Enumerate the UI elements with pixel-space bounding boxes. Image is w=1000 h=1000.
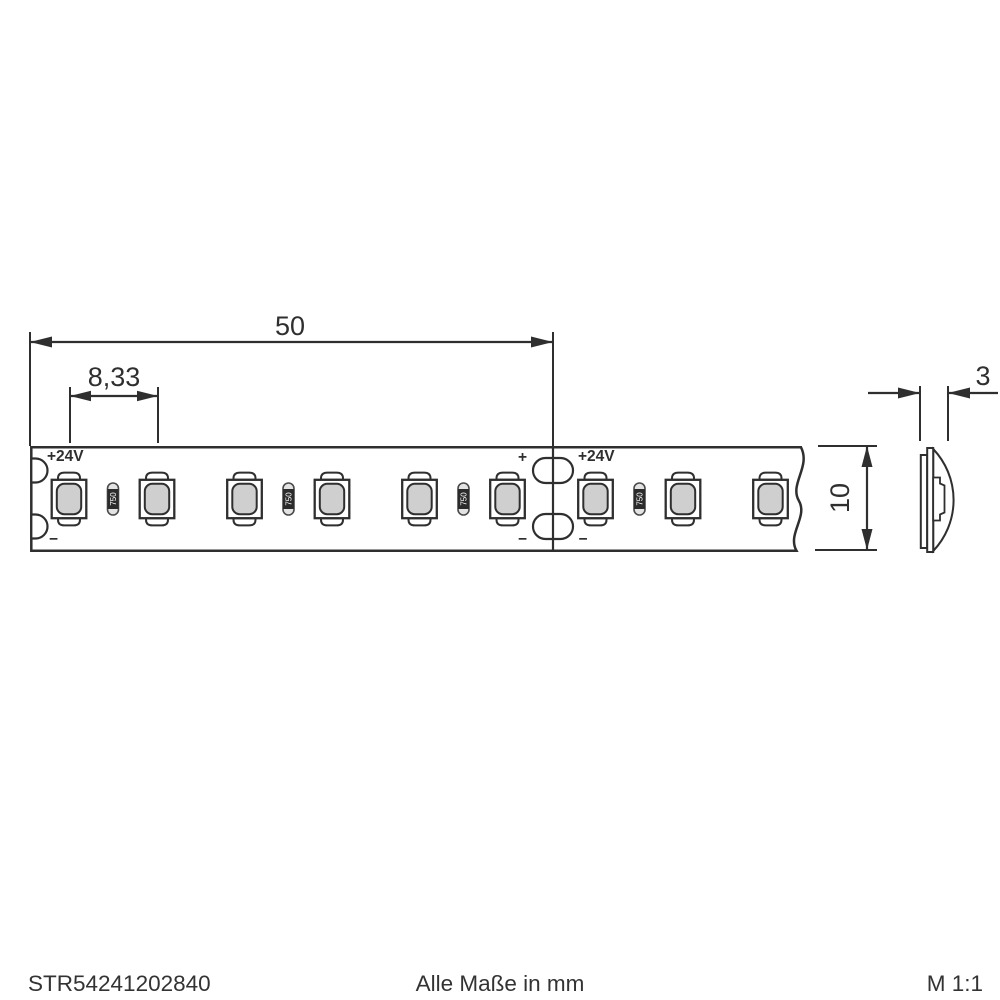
minus-label-right: −	[579, 531, 588, 548]
strip-thickness-value: 3	[975, 361, 990, 391]
dimension-strip-thickness: 3	[868, 361, 998, 441]
arrowhead-right-icon	[898, 388, 920, 399]
led-package	[140, 473, 175, 526]
title-block: STR54241202840 Alle Maße in mm M 1:1	[28, 971, 983, 996]
minus-label-cut: −	[518, 531, 527, 548]
arrowhead-left-icon	[948, 388, 970, 399]
led-package	[402, 473, 437, 526]
arrowhead-left-icon	[30, 337, 52, 348]
solder-pad-half	[31, 459, 47, 483]
side-view-led	[933, 478, 944, 521]
led-strip-drawing: 750 50 8,33	[0, 0, 1000, 1000]
arrowhead-up-icon	[862, 446, 873, 467]
arrowhead-down-icon	[862, 529, 873, 550]
resistor	[458, 483, 469, 515]
scale-label: M 1:1	[927, 971, 983, 996]
arrowhead-right-icon	[137, 391, 158, 401]
led-package	[315, 473, 350, 526]
units-note: Alle Maße in mm	[416, 971, 585, 996]
led-pitch-value: 8,33	[88, 362, 141, 392]
voltage-label-right: +24V	[578, 448, 615, 465]
section-length-value: 50	[275, 311, 305, 341]
dimension-strip-width: 10	[815, 446, 877, 550]
dimension-led-pitch: 8,33	[70, 362, 158, 443]
strip-top-view: +24V − + − +24V −	[31, 447, 803, 551]
plus-label-cut: +	[518, 449, 527, 466]
led-package	[578, 473, 613, 526]
minus-label-left: −	[49, 531, 58, 548]
arrowhead-right-icon	[531, 337, 553, 348]
voltage-label-left: +24V	[47, 448, 84, 465]
drawing-canvas: 750 50 8,33	[0, 0, 1000, 1000]
led-package	[753, 473, 788, 526]
solder-pad-half	[31, 515, 47, 539]
strip-side-view	[921, 448, 954, 552]
strip-width-value: 10	[825, 483, 855, 513]
resistor	[634, 483, 645, 515]
resistor	[283, 483, 294, 515]
led-package	[52, 473, 87, 526]
led-package	[490, 473, 525, 526]
led-package	[227, 473, 262, 526]
arrowhead-left-icon	[70, 391, 91, 401]
part-number: STR54241202840	[28, 971, 211, 996]
resistor	[108, 483, 119, 515]
led-package	[666, 473, 701, 526]
